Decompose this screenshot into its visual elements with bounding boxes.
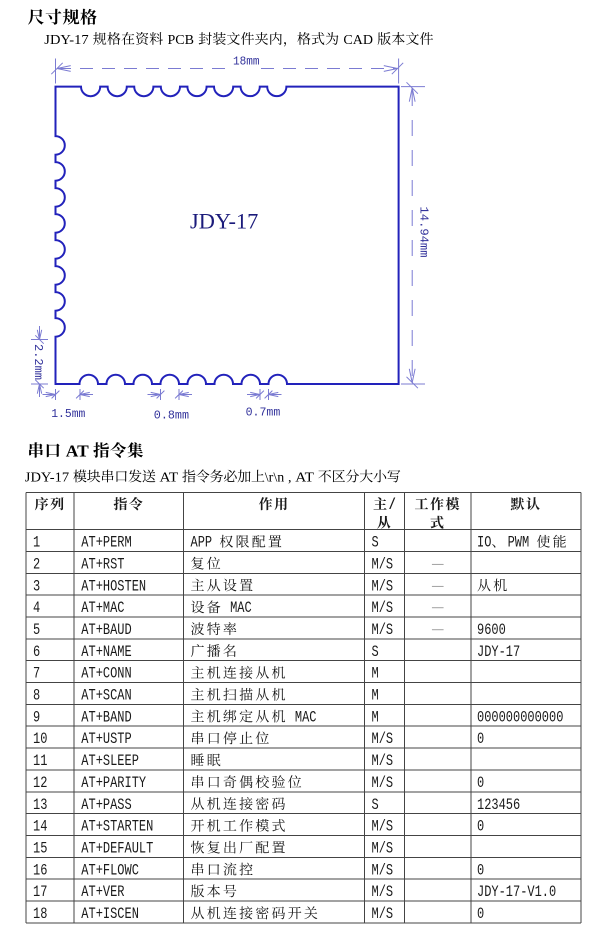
svg-text:PWM: PWM bbox=[508, 534, 530, 552]
svg-text:2: 2 bbox=[33, 556, 40, 574]
svg-text:JDY-17: JDY-17 bbox=[25, 470, 69, 485]
svg-text:7: 7 bbox=[33, 665, 40, 683]
svg-text:M/S: M/S bbox=[372, 840, 394, 858]
svg-text:M/S: M/S bbox=[372, 599, 394, 617]
svg-text:CAD: CAD bbox=[343, 33, 373, 48]
svg-text:AT+USTP: AT+USTP bbox=[81, 730, 131, 748]
svg-text:0.7mm: 0.7mm bbox=[246, 406, 281, 420]
svg-text:IO: IO bbox=[477, 534, 491, 552]
svg-text:1: 1 bbox=[33, 534, 40, 552]
svg-text:M: M bbox=[372, 687, 379, 705]
svg-text:S: S bbox=[372, 643, 379, 661]
svg-text:—: — bbox=[431, 600, 444, 615]
svg-text:M: M bbox=[372, 665, 379, 683]
svg-text:0.8mm: 0.8mm bbox=[154, 409, 189, 423]
svg-text:AT+PARITY: AT+PARITY bbox=[81, 774, 146, 792]
svg-text:—: — bbox=[431, 622, 444, 637]
svg-text:0: 0 bbox=[477, 861, 484, 879]
svg-text:M: M bbox=[372, 708, 379, 726]
svg-text:M/S: M/S bbox=[372, 818, 394, 836]
svg-text:M/S: M/S bbox=[372, 883, 394, 901]
svg-text:4: 4 bbox=[33, 599, 40, 617]
svg-text:11: 11 bbox=[33, 752, 47, 770]
svg-text:123456: 123456 bbox=[477, 796, 520, 814]
svg-text:AT: AT bbox=[66, 441, 89, 460]
svg-text:—: — bbox=[431, 578, 444, 593]
svg-text:18mm: 18mm bbox=[233, 55, 260, 69]
svg-text:M/S: M/S bbox=[372, 577, 394, 595]
svg-text:MAC: MAC bbox=[230, 599, 252, 617]
svg-text:/: / bbox=[389, 496, 396, 514]
svg-text:15: 15 bbox=[33, 840, 47, 858]
svg-text:10: 10 bbox=[33, 730, 47, 748]
svg-text:,: , bbox=[288, 470, 292, 485]
svg-text:9: 9 bbox=[33, 708, 40, 726]
svg-text:AT+STARTEN: AT+STARTEN bbox=[81, 818, 153, 836]
svg-text:AT+PERM: AT+PERM bbox=[81, 534, 131, 552]
svg-text:0: 0 bbox=[477, 905, 484, 923]
svg-text:3: 3 bbox=[33, 577, 40, 595]
svg-text:MAC: MAC bbox=[295, 708, 317, 726]
svg-text:1.5mm: 1.5mm bbox=[51, 407, 85, 421]
svg-text:M/S: M/S bbox=[372, 621, 394, 639]
svg-text:AT+CONN: AT+CONN bbox=[81, 665, 131, 683]
svg-text:13: 13 bbox=[33, 796, 47, 814]
svg-text:AT+FLOWC: AT+FLOWC bbox=[81, 861, 139, 879]
svg-text:2.2mm: 2.2mm bbox=[31, 344, 45, 380]
svg-text:M/S: M/S bbox=[372, 730, 394, 748]
svg-text:JDY-17-V1.0: JDY-17-V1.0 bbox=[477, 883, 556, 901]
svg-text:0: 0 bbox=[477, 818, 484, 836]
svg-text:14: 14 bbox=[33, 818, 47, 836]
svg-text:M/S: M/S bbox=[372, 861, 394, 879]
svg-text:8: 8 bbox=[33, 687, 40, 705]
svg-text:JDY-17: JDY-17 bbox=[477, 643, 520, 661]
svg-text:16: 16 bbox=[33, 861, 47, 879]
svg-text:AT+HOSTEN: AT+HOSTEN bbox=[81, 577, 146, 595]
svg-text:\r\n: \r\n bbox=[265, 470, 284, 485]
svg-text:0: 0 bbox=[477, 774, 484, 792]
svg-text:6: 6 bbox=[33, 643, 40, 661]
svg-text:AT+SCAN: AT+SCAN bbox=[81, 687, 131, 705]
svg-text:APP: APP bbox=[191, 534, 213, 552]
svg-text:9600: 9600 bbox=[477, 621, 506, 639]
svg-text:AT+BAND: AT+BAND bbox=[81, 708, 131, 726]
svg-text:JDY-17: JDY-17 bbox=[44, 33, 88, 48]
svg-text:5: 5 bbox=[33, 621, 40, 639]
svg-text:M/S: M/S bbox=[372, 556, 394, 574]
svg-text:12: 12 bbox=[33, 774, 47, 792]
svg-text:—: — bbox=[431, 557, 444, 572]
svg-text:AT: AT bbox=[160, 470, 179, 485]
svg-text:S: S bbox=[372, 796, 379, 814]
svg-text:AT+VER: AT+VER bbox=[81, 883, 124, 901]
svg-text:PCB: PCB bbox=[168, 33, 195, 48]
svg-text:JDY-17: JDY-17 bbox=[190, 209, 258, 234]
svg-text:AT+BAUD: AT+BAUD bbox=[81, 621, 131, 639]
svg-text:S: S bbox=[372, 534, 379, 552]
svg-text:AT+MAC: AT+MAC bbox=[81, 599, 124, 617]
svg-text:18: 18 bbox=[33, 905, 47, 923]
svg-text:AT+ISCEN: AT+ISCEN bbox=[81, 905, 139, 923]
svg-text:14.94mm: 14.94mm bbox=[417, 207, 431, 258]
svg-text:M/S: M/S bbox=[372, 905, 394, 923]
svg-text:M/S: M/S bbox=[372, 752, 394, 770]
svg-text:AT+PASS: AT+PASS bbox=[81, 796, 131, 814]
svg-text:AT+RST: AT+RST bbox=[81, 556, 124, 574]
svg-text:0: 0 bbox=[477, 730, 484, 748]
svg-text:AT+SLEEP: AT+SLEEP bbox=[81, 752, 139, 770]
svg-text:000000000000: 000000000000 bbox=[477, 708, 563, 726]
svg-text:AT: AT bbox=[295, 470, 314, 485]
svg-text:17: 17 bbox=[33, 883, 47, 901]
svg-text:AT+DEFAULT: AT+DEFAULT bbox=[81, 840, 153, 858]
svg-text:AT+NAME: AT+NAME bbox=[81, 643, 131, 661]
svg-text:M/S: M/S bbox=[372, 774, 394, 792]
